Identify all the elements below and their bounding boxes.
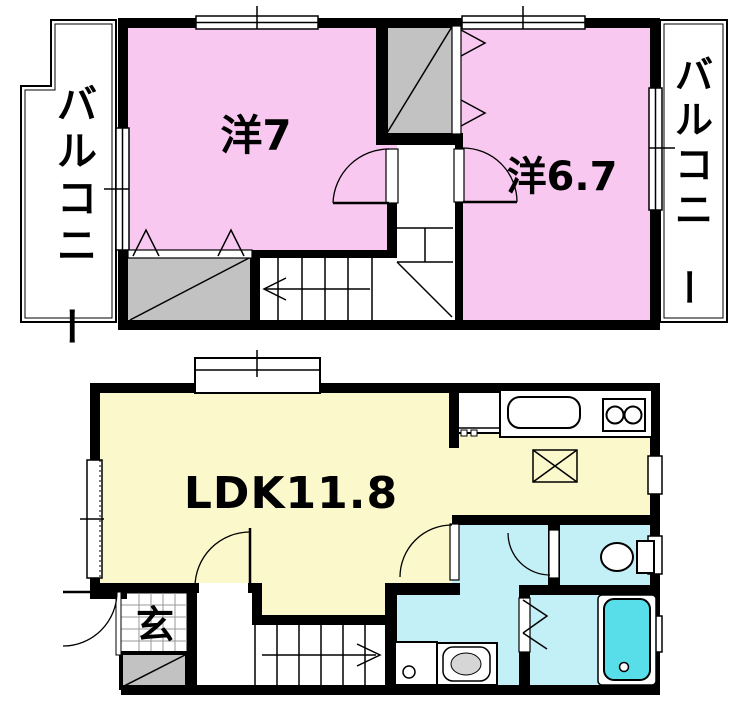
bay-window xyxy=(195,350,320,393)
wash-basin xyxy=(437,643,497,685)
toilet-tank xyxy=(637,541,654,573)
bedroom1-label: 洋7 xyxy=(220,111,291,160)
staircase-lower xyxy=(255,625,385,685)
toilet-bowl xyxy=(601,543,633,571)
floor-plan-canvas: 洋7 洋6.7 バルコニー バルコニー xyxy=(0,0,748,711)
entry-door xyxy=(63,592,121,655)
floor-plan-svg: 洋7 洋6.7 バルコニー バルコニー xyxy=(0,0,748,711)
refrigerator-space xyxy=(533,450,577,482)
stove-burner-left xyxy=(607,407,624,424)
kitchen-side-counter xyxy=(458,392,500,433)
bedroom2-label: 洋6.7 xyxy=(507,154,618,200)
bedroom2-doorway xyxy=(454,149,464,202)
bedroom1-doorway xyxy=(386,149,398,203)
washing-machine xyxy=(395,642,437,685)
kitchen-sink xyxy=(508,397,580,428)
shoe-cabinet xyxy=(121,653,187,688)
ldk-label: LDK11.8 xyxy=(184,468,398,519)
bathtub xyxy=(598,595,656,685)
toilet-fixture xyxy=(601,541,654,573)
entrance-label: 玄 xyxy=(136,603,174,647)
window-kitchen xyxy=(648,456,662,494)
stove-burner-right xyxy=(625,407,642,424)
upper-floor: 洋7 洋6.7 バルコニー バルコニー xyxy=(21,6,727,346)
closet2-door xyxy=(452,26,461,134)
closet1-door xyxy=(128,250,252,258)
lower-floor: LDK11.8 玄 xyxy=(63,350,662,695)
bathtub-drain xyxy=(620,663,629,672)
upper-hall-floor xyxy=(397,145,455,320)
